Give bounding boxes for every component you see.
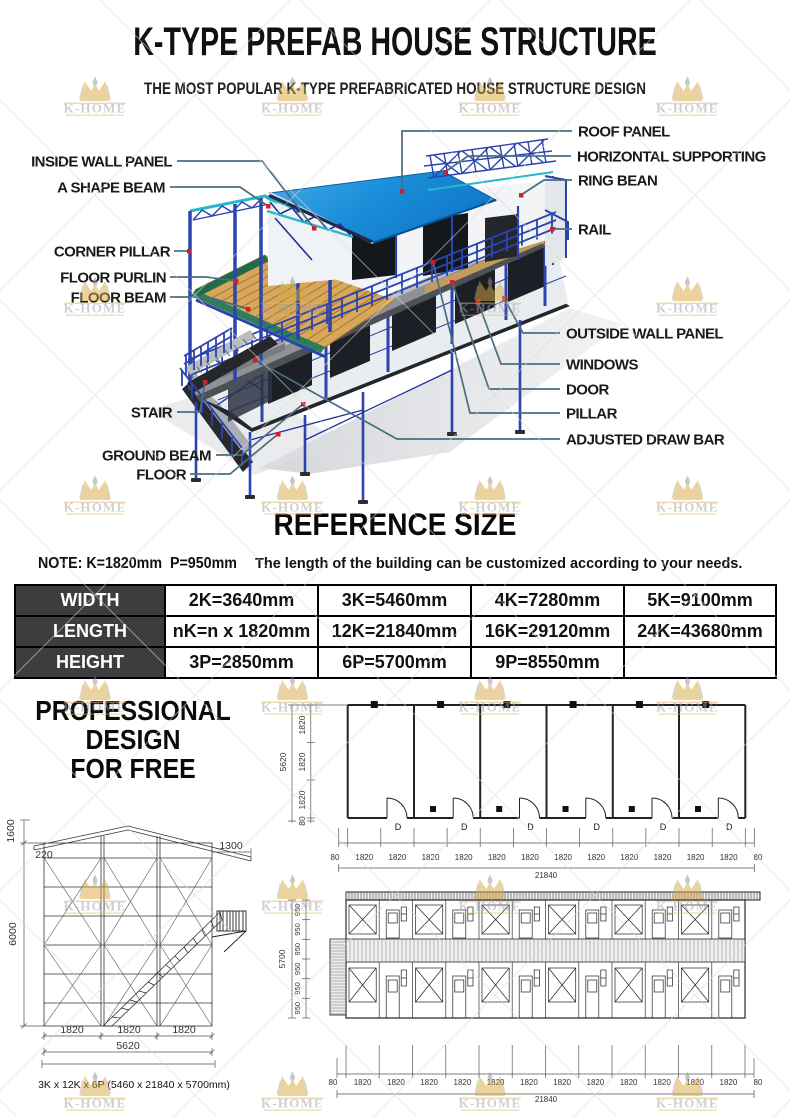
svg-text:1820: 1820 — [686, 1078, 704, 1087]
svg-text:D: D — [726, 822, 733, 832]
svg-text:1820: 1820 — [553, 1078, 571, 1087]
svg-text:1820: 1820 — [720, 853, 738, 862]
svg-text:OUTSIDE WALL PANEL: OUTSIDE WALL PANEL — [566, 326, 723, 343]
svg-text:1820: 1820 — [554, 853, 572, 862]
svg-text:220: 220 — [35, 849, 53, 861]
svg-text:1820: 1820 — [654, 853, 672, 862]
svg-text:1820: 1820 — [297, 790, 307, 809]
svg-text:21840: 21840 — [535, 871, 558, 880]
svg-text:D: D — [461, 822, 468, 832]
svg-text:1820: 1820 — [521, 853, 539, 862]
svg-text:1820: 1820 — [487, 1078, 505, 1087]
svg-text:5700: 5700 — [277, 949, 287, 968]
svg-text:80: 80 — [754, 1078, 763, 1087]
svg-text:80: 80 — [297, 816, 307, 826]
svg-text:21840: 21840 — [535, 1095, 558, 1104]
svg-text:5620: 5620 — [116, 1040, 140, 1052]
svg-text:1820: 1820 — [354, 1078, 372, 1087]
svg-text:950: 950 — [293, 923, 302, 936]
svg-text:1820: 1820 — [117, 1024, 141, 1036]
svg-text:1820: 1820 — [454, 1078, 472, 1087]
svg-text:1820: 1820 — [587, 853, 605, 862]
svg-text:D: D — [395, 822, 402, 832]
svg-text:1820: 1820 — [587, 1078, 605, 1087]
svg-text:1820: 1820 — [297, 752, 307, 771]
svg-text:5620: 5620 — [278, 752, 288, 771]
svg-text:950: 950 — [293, 1002, 302, 1015]
svg-text:80: 80 — [754, 853, 763, 862]
svg-text:1820: 1820 — [720, 1078, 738, 1087]
svg-text:1820: 1820 — [687, 853, 705, 862]
svg-text:PILLAR: PILLAR — [566, 406, 618, 423]
svg-text:FLOOR: FLOOR — [136, 467, 186, 484]
svg-text:1820: 1820 — [488, 853, 506, 862]
svg-text:80: 80 — [329, 1078, 338, 1087]
svg-text:1820: 1820 — [620, 853, 638, 862]
svg-text:1820: 1820 — [455, 853, 473, 862]
svg-text:DOOR: DOOR — [566, 382, 610, 399]
svg-text:1820: 1820 — [297, 715, 307, 734]
svg-text:STAIR: STAIR — [131, 405, 173, 422]
svg-text:GROUND BEAM: GROUND BEAM — [102, 448, 211, 465]
svg-text:ROOF PANEL: ROOF PANEL — [578, 124, 670, 141]
svg-text:1820: 1820 — [355, 853, 373, 862]
svg-text:950: 950 — [293, 943, 302, 956]
svg-text:FLOOR PURLIN: FLOOR PURLIN — [60, 270, 166, 287]
svg-text:3K x 12K x 6P (5460 x 21840 x: 3K x 12K x 6P (5460 x 21840 x 5700mm) — [38, 1079, 230, 1091]
svg-text:950: 950 — [293, 904, 302, 917]
svg-text:D: D — [660, 822, 667, 832]
svg-text:RING BEAN: RING BEAN — [578, 173, 657, 190]
svg-text:1820: 1820 — [172, 1024, 196, 1036]
svg-text:6000: 6000 — [7, 922, 19, 946]
svg-text:1820: 1820 — [389, 853, 407, 862]
svg-text:1820: 1820 — [420, 1078, 438, 1087]
svg-text:FLOOR BEAM: FLOOR BEAM — [71, 290, 166, 307]
svg-text:950: 950 — [293, 963, 302, 976]
svg-text:INSIDE WALL PANEL: INSIDE WALL PANEL — [31, 154, 172, 171]
svg-text:D: D — [594, 822, 601, 832]
svg-text:1820: 1820 — [387, 1078, 405, 1087]
svg-text:ADJUSTED DRAW BAR: ADJUSTED DRAW BAR — [566, 432, 725, 449]
svg-text:D: D — [527, 822, 534, 832]
svg-text:1600: 1600 — [5, 819, 17, 843]
svg-text:1820: 1820 — [60, 1024, 84, 1036]
svg-text:1820: 1820 — [620, 1078, 638, 1087]
svg-text:1820: 1820 — [422, 853, 440, 862]
svg-text:80: 80 — [331, 853, 340, 862]
svg-text:A SHAPE BEAM: A SHAPE BEAM — [57, 180, 165, 197]
svg-text:950: 950 — [293, 982, 302, 995]
svg-text:1820: 1820 — [520, 1078, 538, 1087]
svg-text:CORNER PILLAR: CORNER PILLAR — [54, 244, 171, 261]
svg-text:1300: 1300 — [219, 840, 243, 852]
svg-text:HORIZONTAL SUPPORTING: HORIZONTAL SUPPORTING — [577, 149, 766, 166]
svg-text:RAIL: RAIL — [578, 222, 611, 239]
svg-text:1820: 1820 — [653, 1078, 671, 1087]
svg-text:WINDOWS: WINDOWS — [566, 357, 639, 374]
